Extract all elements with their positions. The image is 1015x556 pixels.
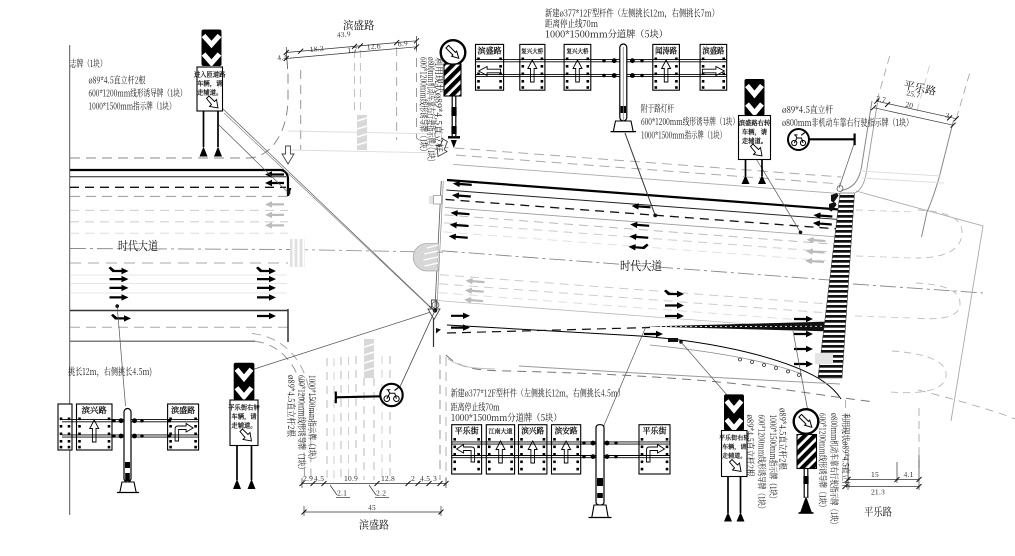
svg-text:1000*1500mm指示牌（1块）: 1000*1500mm指示牌（1块） — [89, 99, 176, 113]
svg-text:1000*1500mm指示牌（1块）: 1000*1500mm指示牌（1块） — [641, 128, 726, 142]
svg-text:闻涛路: 闻涛路 — [655, 45, 677, 56]
svg-text:1000*1500mm分道牌（5块）: 1000*1500mm分道牌（5块） — [545, 27, 668, 41]
svg-text:600*1200mm线形诱导牌（1块）: 600*1200mm线形诱导牌（1块） — [641, 114, 739, 128]
svg-text:600*1200mm线形诱导牌（1块）: 600*1200mm线形诱导牌（1块） — [817, 413, 830, 511]
svg-text:4.5: 4.5 — [314, 474, 324, 484]
svg-text:2.2: 2.2 — [376, 489, 386, 499]
svg-text:滨安路: 滨安路 — [554, 426, 578, 437]
svg-text:ø89*4.5直立杆: ø89*4.5直立杆 — [782, 102, 833, 116]
svg-text:3: 3 — [944, 111, 950, 122]
svg-text:1.7: 1.7 — [347, 45, 358, 56]
svg-text:利用现状ø89*4.5直立杆: 利用现状ø89*4.5直立杆 — [840, 413, 853, 488]
svg-text:挑长12m，右侧挑长4.5m): 挑长12m，右侧挑长4.5m) — [68, 364, 152, 378]
svg-text:2.9: 2.9 — [303, 474, 313, 484]
svg-text:4.4: 4.4 — [277, 53, 288, 64]
svg-text:15: 15 — [871, 470, 879, 480]
svg-text:4.5: 4.5 — [420, 474, 430, 484]
svg-text:滨盛路: 滨盛路 — [477, 45, 502, 56]
svg-text:ø89*4.5直立杆2根: ø89*4.5直立杆2根 — [89, 73, 146, 87]
svg-text:1000*1500mm指示牌（1块）: 1000*1500mm指示牌（1块） — [306, 375, 319, 463]
svg-text:ø800mm机动车靠右行驶指示牌（1块）: ø800mm机动车靠右行驶指示牌（1块） — [828, 413, 841, 528]
svg-text:志牌（1块）: 志牌（1块） — [70, 56, 107, 70]
svg-text:进入匝道路: 进入匝道路 — [194, 70, 226, 79]
svg-text:平乐街右转: 平乐街右转 — [228, 403, 260, 412]
svg-text:走辅道。: 走辅道。 — [231, 421, 256, 430]
svg-text:滨盛路右转: 滨盛路右转 — [739, 118, 771, 127]
svg-text:复兴大桥: 复兴大桥 — [567, 46, 589, 55]
svg-text:附于路灯杆: 附于路灯杆 — [641, 101, 674, 115]
svg-text:时代大道: 时代大道 — [118, 237, 158, 254]
svg-text:600*1200mm线形诱导牌（1块）: 600*1200mm线形诱导牌（1块） — [89, 86, 187, 100]
svg-text:45: 45 — [368, 503, 376, 513]
svg-text:3: 3 — [433, 474, 437, 484]
svg-text:10.9: 10.9 — [344, 474, 358, 484]
svg-text:滨盛路: 滨盛路 — [701, 45, 724, 56]
svg-text:滨盛路: 滨盛路 — [359, 517, 389, 533]
svg-text:21.3: 21.3 — [871, 488, 885, 498]
svg-text:12.8: 12.8 — [381, 474, 395, 484]
svg-text:ø800mm非机动车靠右行驶指示牌（1块）: ø800mm非机动车靠右行驶指示牌（1块） — [782, 115, 913, 129]
svg-text:ø89*4.5直立杆2根: ø89*4.5直立杆2根 — [777, 408, 790, 470]
svg-text:走辅道。: 走辅道。 — [197, 88, 222, 97]
svg-text:600*1200mm线形诱导牌（1块）: 600*1200mm线形诱导牌（1块） — [756, 415, 769, 513]
svg-text:6.9: 6.9 — [397, 39, 408, 50]
svg-text:4.1: 4.1 — [904, 470, 914, 480]
svg-text:600*1200mm线形诱导牌（1块）: 600*1200mm线形诱导牌（1块） — [418, 57, 431, 155]
svg-text:18.3: 18.3 — [309, 44, 324, 55]
svg-text:走辅道。: 走辅道。 — [742, 136, 767, 145]
svg-text:滨兴路: 滨兴路 — [81, 405, 107, 416]
svg-text:滨盛路: 滨盛路 — [170, 405, 195, 416]
svg-text:时代大道: 时代大道 — [620, 257, 662, 274]
svg-text:1000*1500mm分道牌（5块）: 1000*1500mm分道牌（5块） — [451, 410, 562, 424]
svg-text:滨兴路: 滨兴路 — [520, 426, 544, 437]
svg-text:2: 2 — [411, 474, 415, 484]
svg-text:43.9: 43.9 — [336, 29, 351, 40]
svg-text:平乐路: 平乐路 — [864, 504, 892, 520]
svg-text:2.7: 2.7 — [875, 94, 887, 106]
svg-text:平乐街: 平乐街 — [455, 426, 479, 437]
svg-text:新建ø377*12F型杆件（左侧挑长12m，右侧挑长4.5m: 新建ø377*12F型杆件（左侧挑长12m，右侧挑长4.5m） — [451, 386, 625, 400]
svg-text:12.6: 12.6 — [366, 41, 381, 52]
svg-text:江南大道: 江南大道 — [488, 427, 513, 436]
svg-text:平乐街: 平乐街 — [643, 426, 667, 437]
svg-text:走辅道。: 走辅道。 — [721, 451, 746, 460]
svg-text:复兴大桥: 复兴大桥 — [521, 46, 543, 55]
svg-text:ø89*4.5直立杆2根: ø89*4.5直立杆2根 — [744, 415, 757, 477]
svg-text:2.1: 2.1 — [337, 489, 347, 499]
